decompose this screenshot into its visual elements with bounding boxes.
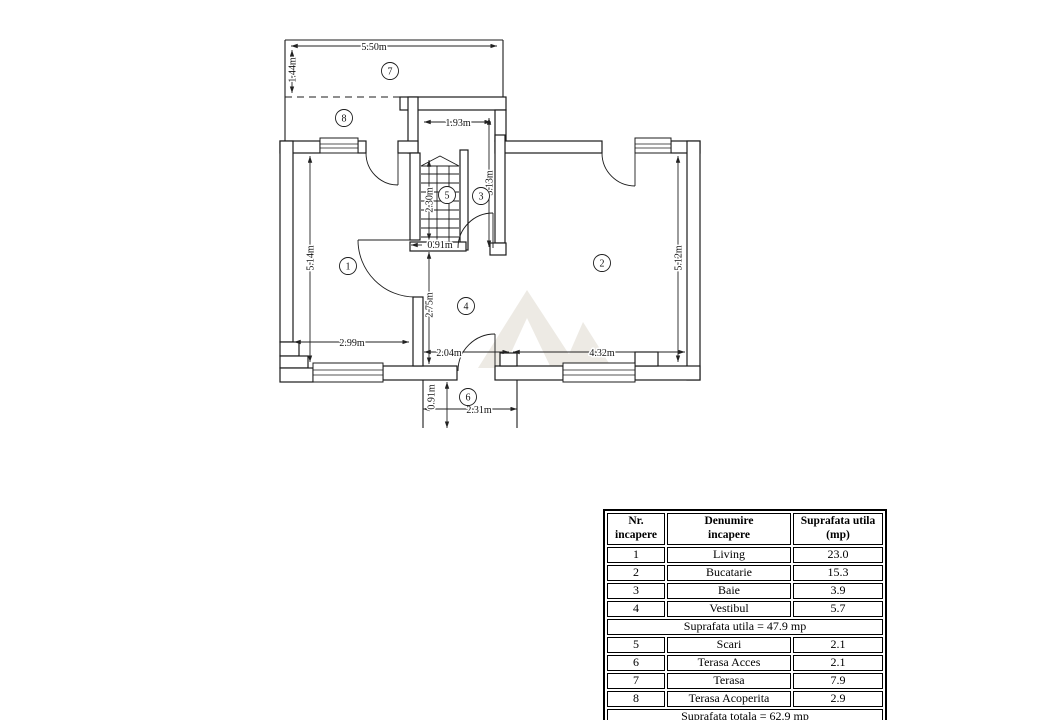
- dimension-label: 2.30m: [425, 187, 436, 213]
- dimension-label: 2.75m: [425, 292, 436, 318]
- total-suprafata: Suprafata totala = 62.9 mp: [607, 709, 883, 720]
- dimension-label: 2.99m: [339, 338, 365, 349]
- cell-area: 5.7: [793, 601, 883, 617]
- header-suprafata: Suprafata utila (mp): [793, 513, 883, 545]
- table-row: 1 Living 23.0: [607, 547, 883, 563]
- cell-name: Living: [667, 547, 791, 563]
- table-subtotal-row: Suprafata utila = 47.9 mp: [607, 619, 883, 635]
- dimension-label: 1.93m: [445, 118, 471, 129]
- room-marker-scari: 5: [439, 187, 456, 204]
- dimension-label: 2.04m: [436, 348, 462, 359]
- cell-name: Bucatarie: [667, 565, 791, 581]
- svg-text:7: 7: [388, 67, 393, 78]
- window-living-bottom: [313, 363, 383, 382]
- table-row: 7 Terasa 7.9: [607, 673, 883, 689]
- table-row: 4 Vestibul 5.7: [607, 601, 883, 617]
- cell-area: 2.1: [793, 655, 883, 671]
- cell-nr: 5: [607, 637, 665, 653]
- table-total-row: Suprafata totala = 62.9 mp: [607, 709, 883, 720]
- table-header-row: Nr. incapere Denumire incapere Suprafata…: [607, 513, 883, 545]
- room-marker-terasa-acces: 6: [460, 389, 477, 406]
- room-marker-terasa-acoperita: 8: [336, 110, 353, 127]
- cell-nr: 4: [607, 601, 665, 617]
- dimension-label: 5.50m: [361, 42, 387, 53]
- door-living-terasa: [366, 153, 398, 185]
- cell-name: Scari: [667, 637, 791, 653]
- cell-area: 3.9: [793, 583, 883, 599]
- header-denumire: Denumire incapere: [667, 513, 791, 545]
- dimension-label: 5.12m: [674, 245, 685, 271]
- room-marker-vestibul: 4: [458, 298, 475, 315]
- room-marker-bucatarie: 2: [594, 255, 611, 272]
- svg-text:1: 1: [346, 262, 351, 273]
- svg-text:8: 8: [342, 114, 347, 125]
- cell-area: 7.9: [793, 673, 883, 689]
- svg-text:6: 6: [466, 393, 471, 404]
- cell-name: Terasa: [667, 673, 791, 689]
- cell-nr: 1: [607, 547, 665, 563]
- window-bucatarie-top: [635, 138, 671, 153]
- cell-nr: 8: [607, 691, 665, 707]
- table-row: 8 Terasa Acoperita 2.9: [607, 691, 883, 707]
- floor-plan-page: 5.50m 1.44m 1.93m 3.13m 2.30m 0.91m 5.14…: [0, 0, 1040, 720]
- room-marker-baie: 3: [473, 188, 490, 205]
- header-nr-incapere: Nr. incapere: [607, 513, 665, 545]
- dimension-label: 5.14m: [306, 245, 317, 271]
- svg-text:3: 3: [479, 192, 484, 203]
- cell-nr: 7: [607, 673, 665, 689]
- cell-nr: 6: [607, 655, 665, 671]
- door-living-vestibul: [358, 240, 415, 297]
- cell-nr: 3: [607, 583, 665, 599]
- dimension-label: 0.91m: [427, 384, 438, 410]
- cell-area: 15.3: [793, 565, 883, 581]
- dimension-label: 2.31m: [466, 405, 492, 416]
- cell-name: Baie: [667, 583, 791, 599]
- cell-area: 23.0: [793, 547, 883, 563]
- dimension-label: 1.44m: [288, 57, 299, 83]
- table-row: 5 Scari 2.1: [607, 637, 883, 653]
- cell-name: Vestibul: [667, 601, 791, 617]
- table-row: 2 Bucatarie 15.3: [607, 565, 883, 581]
- dimension-label: 4.32m: [589, 348, 615, 359]
- svg-text:5: 5: [445, 191, 450, 202]
- window-bucatarie-bottom: [563, 363, 635, 382]
- svg-text:2: 2: [600, 259, 605, 270]
- cell-nr: 2: [607, 565, 665, 581]
- dimension-label: 0.91m: [427, 240, 453, 251]
- door-bucatarie-exterior: [602, 153, 635, 186]
- table-row: 3 Baie 3.9: [607, 583, 883, 599]
- room-marker-terasa: 7: [382, 63, 399, 80]
- cell-name: Terasa Acoperita: [667, 691, 791, 707]
- window-living-top: [320, 138, 358, 153]
- svg-text:4: 4: [464, 302, 469, 313]
- cell-area: 2.9: [793, 691, 883, 707]
- cell-name: Terasa Acces: [667, 655, 791, 671]
- room-areas-table: Nr. incapere Denumire incapere Suprafata…: [603, 509, 887, 720]
- subtotal-utila: Suprafata utila = 47.9 mp: [607, 619, 883, 635]
- table-row: 6 Terasa Acces 2.1: [607, 655, 883, 671]
- room-marker-living: 1: [340, 258, 357, 275]
- cell-area: 2.1: [793, 637, 883, 653]
